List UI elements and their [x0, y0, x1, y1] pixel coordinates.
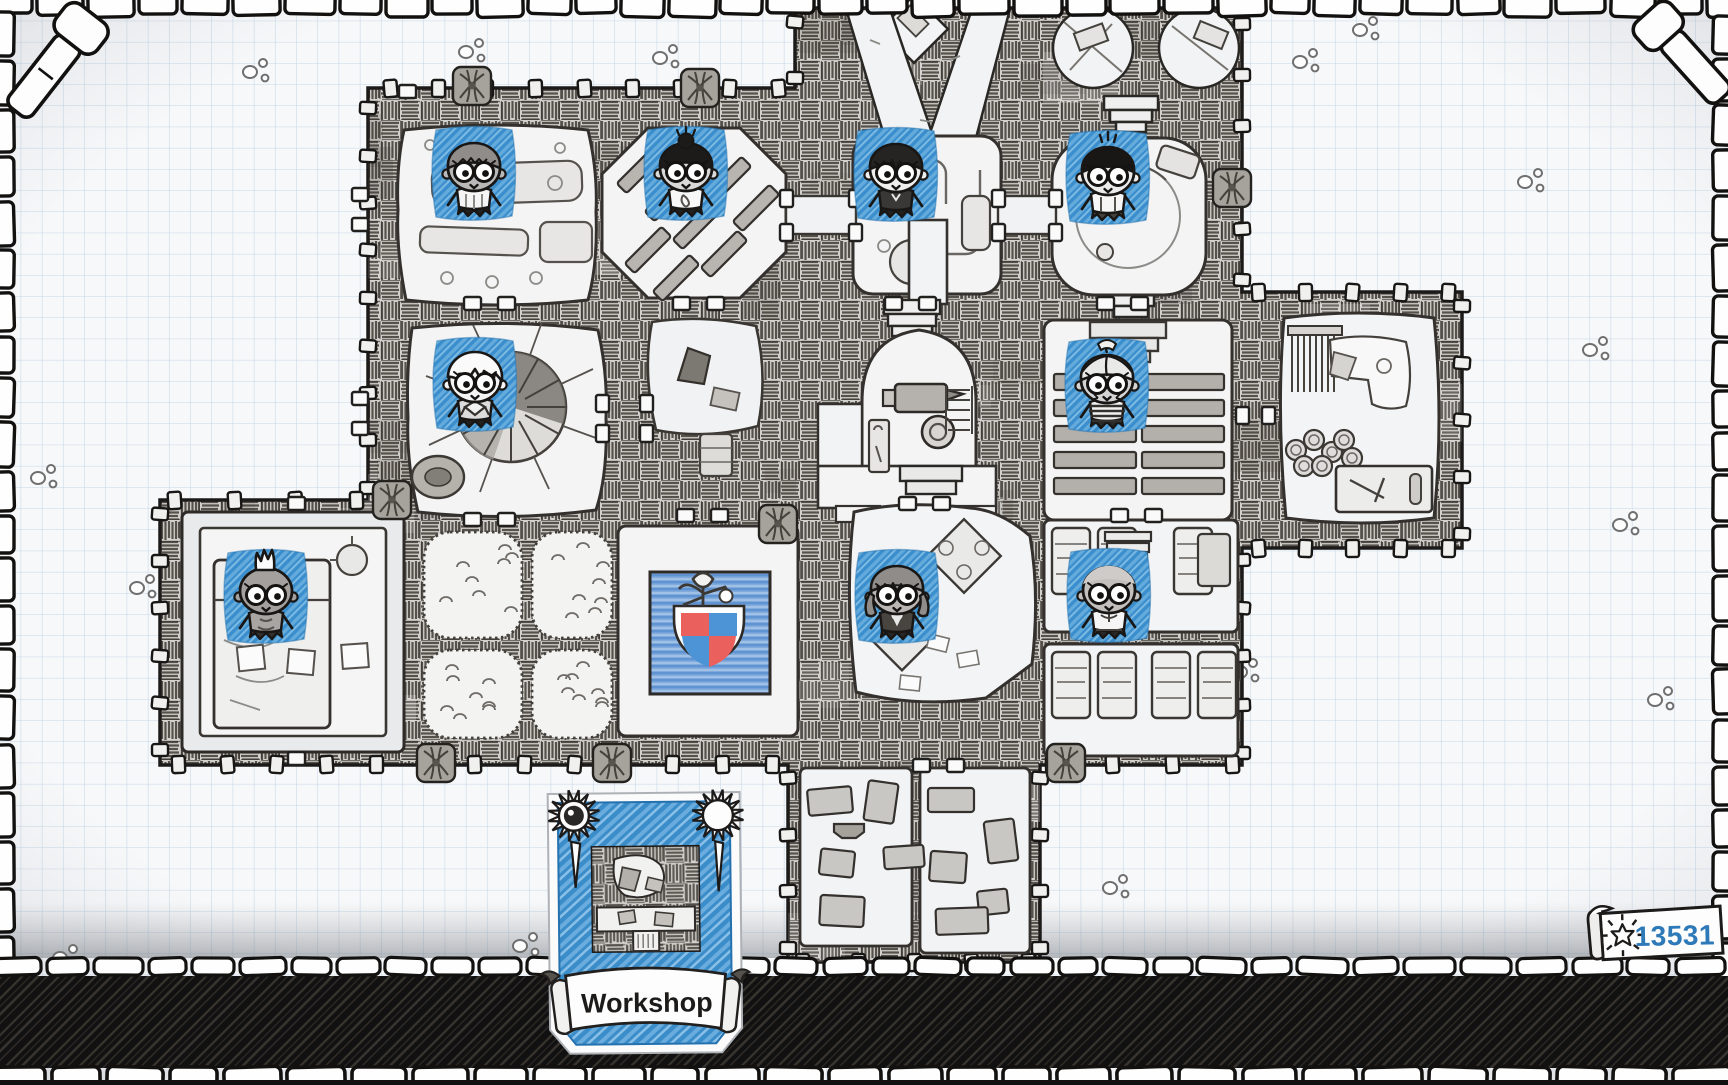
svg-text:Workshop: Workshop: [581, 987, 713, 1018]
svg-text:13531: 13531: [1634, 919, 1715, 952]
